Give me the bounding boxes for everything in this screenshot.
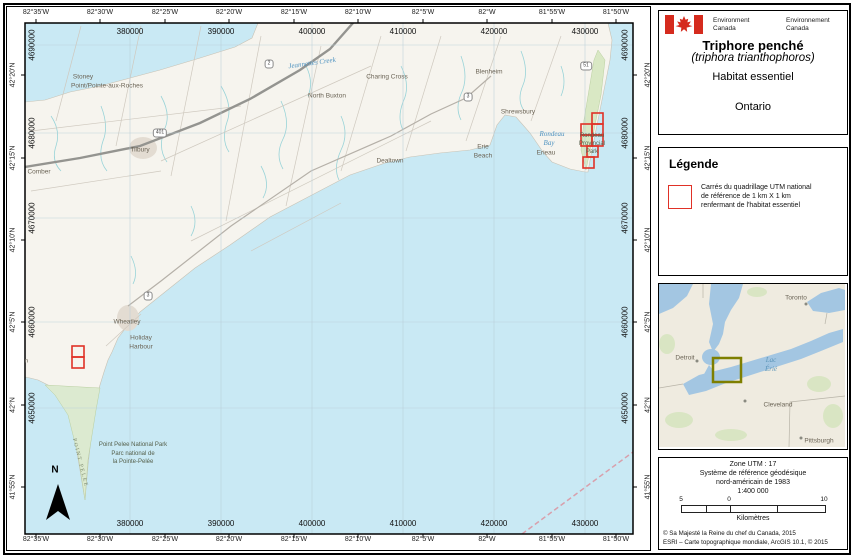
northing-label-left: 4670000 (28, 202, 37, 233)
place-label-north-buxton: North Buxton (308, 93, 346, 100)
lat-label-right: 42°15'N (645, 146, 652, 171)
place-label-erie-beach: Beach (474, 153, 492, 160)
lon-label-bottom: 81°50'W (603, 536, 629, 543)
rondeau-park-label: Provincial (579, 141, 605, 147)
place-label-blenheim: Blenheim (475, 69, 502, 76)
place-label-holiday-harbour: Holiday (130, 335, 152, 342)
easting-label-top: 420000 (481, 27, 508, 36)
place-label-stoney-point: Point/Pointe-aux-Roches (71, 83, 143, 90)
easting-label-top: 430000 (572, 27, 599, 36)
map-subtitle: Habitat essentiel (712, 71, 793, 83)
place-label-leamington: Leamington (25, 358, 28, 365)
scale-bar (681, 505, 826, 513)
northing-label-left: 4660000 (28, 306, 37, 337)
highway-shield-3: 3 (144, 292, 153, 301)
highway-shield-2: 2 (265, 60, 274, 69)
canada-flag-icon (665, 15, 703, 34)
info-panel: Zone UTM : 17 Système de référence géodé… (658, 457, 848, 550)
species-name: (triphora trianthophoros) (691, 52, 814, 64)
inset-city-pittsburgh: Pittsburgh (804, 438, 833, 445)
place-label-wheatley: Wheatley (113, 319, 140, 326)
scalebar-number: 0 (727, 496, 731, 503)
northing-label-right: 4670000 (621, 202, 630, 233)
lon-label-bottom: 82°30'W (87, 536, 113, 543)
easting-label-bottom: 420000 (481, 519, 508, 528)
easting-label-top: 380000 (117, 27, 144, 36)
map-interior: 380000 390000 400000 410000 420000 43000… (25, 23, 633, 534)
northing-label-right: 4650000 (621, 392, 630, 423)
lon-label-top: 82°25'W (152, 9, 178, 16)
lat-label-right: 41°55'N (645, 475, 652, 500)
inset-map-panel: Toronto Detroit Cleveland Pittsburgh Lac… (658, 283, 848, 450)
lat-label-left: 42°N (10, 397, 17, 413)
easting-label-bottom: 380000 (117, 519, 144, 528)
place-label-erie-beach: Erie (477, 144, 489, 151)
easting-label-top: 400000 (299, 27, 326, 36)
northing-label-left: 4690000 (28, 29, 37, 60)
easting-label-bottom: 400000 (299, 519, 326, 528)
title-panel: EnvironmentCanada EnvironnementCanada Tr… (658, 10, 848, 135)
datum-label: Système de référence géodésique (700, 470, 807, 477)
lon-label-top: 82°30'W (87, 9, 113, 16)
easting-label-bottom: 430000 (572, 519, 599, 528)
environnement-canada-fr: EnvironnementCanada (786, 17, 830, 32)
lon-label-top: 82°20'W (216, 9, 242, 16)
easting-label-bottom: 390000 (208, 519, 235, 528)
lon-label-bottom: 81°55'W (539, 536, 565, 543)
point-pelee-label: POINT PELEE (71, 438, 89, 488)
northing-label-left: 4650000 (28, 392, 37, 423)
place-label-erieau: Erieau (537, 150, 556, 157)
lon-label-top: 82°5'W (412, 9, 434, 16)
lat-label-left: 42°20'N (10, 63, 17, 88)
lon-label-top: 81°55'W (539, 9, 565, 16)
inset-lake-erie-label: Lac (766, 356, 777, 364)
region-label: Ontario (735, 101, 771, 113)
lon-label-top: 82°35'W (23, 9, 49, 16)
lat-label-right: 42°20'N (645, 63, 652, 88)
lon-label-bottom: 82°15'W (281, 536, 307, 543)
pelee-park-label: Parc national de (111, 451, 154, 457)
rondeau-park-label: Park (586, 149, 598, 155)
lon-label-bottom: 82°35'W (23, 536, 49, 543)
highway-shield-51: 51 (580, 62, 592, 71)
place-label-comber: Comber (27, 169, 50, 176)
lon-label-top: 82°W (478, 9, 495, 16)
lon-label-bottom: 82°25'W (152, 536, 178, 543)
easting-label-bottom: 410000 (390, 519, 417, 528)
scale-ratio-label: 1:400 000 (737, 488, 768, 495)
pelee-park-label: Point Pelee National Park (99, 442, 167, 448)
lon-label-bottom: 82°W (478, 536, 495, 543)
map-title: Triphore penché (702, 38, 803, 53)
environment-canada-en: EnvironmentCanada (713, 17, 750, 32)
lat-label-right: 42°10'N (645, 228, 652, 253)
lon-label-bottom: 82°5'W (412, 536, 434, 543)
rondeau-bay-label: Bay (544, 139, 555, 147)
legend-item-text: Carrés du quadrillage UTM national de ré… (701, 183, 812, 210)
creek-label: Jeannettes Creek (288, 56, 336, 71)
north-arrow-label: N (51, 465, 58, 476)
map-document: { "title_panel": { "env_en_1": "Environm… (0, 0, 854, 558)
inset-city-cleveland: Cleveland (764, 402, 793, 409)
place-label-shrewsbury: Shrewsbury (501, 109, 535, 116)
inset-city-toronto: Toronto (785, 295, 807, 302)
scalebar-number: 10 (820, 496, 827, 503)
lat-label-left: 42°5'N (10, 312, 17, 333)
scalebar-unit-label: Kilomètres (736, 515, 769, 522)
habitat-square-symbol (668, 185, 692, 209)
legend-panel: Légende Carrés du quadrillage UTM nation… (658, 147, 848, 276)
lat-label-right: 42°N (645, 397, 652, 413)
place-label-dealtown: Dealtown (376, 158, 403, 165)
place-label-holiday-harbour: Harbour (129, 344, 152, 351)
datum-label: nord-américain de 1983 (716, 479, 790, 486)
lat-label-left: 42°10'N (10, 228, 17, 253)
lon-label-bottom: 82°20'W (216, 536, 242, 543)
easting-label-top: 390000 (208, 27, 235, 36)
inset-map-canvas (659, 284, 845, 447)
pelee-park-label: la Pointe-Pelée (113, 459, 154, 465)
legend-heading: Légende (669, 157, 718, 171)
inset-lake-erie-label: Érié (765, 365, 777, 373)
scalebar-number: 5 (679, 496, 683, 503)
rondeau-park-label: Rondeau (580, 133, 604, 139)
place-label-charing-cross: Charing Cross (366, 74, 408, 81)
highway-shield-3: 3 (464, 93, 473, 102)
highway-shield-401: 401 (153, 129, 167, 138)
lon-label-top: 82°10'W (345, 9, 371, 16)
lon-label-top: 82°15'W (281, 9, 307, 16)
northing-label-right: 4690000 (621, 29, 630, 60)
easting-label-top: 410000 (390, 27, 417, 36)
northing-label-right: 4660000 (621, 306, 630, 337)
place-label-stoney-point: Stoney (73, 74, 93, 81)
inset-city-detroit: Detroit (675, 355, 694, 362)
place-label-tilbury: Tilbury (130, 147, 149, 154)
lon-label-bottom: 82°10'W (345, 536, 371, 543)
lat-label-left: 42°15'N (10, 146, 17, 171)
copyright-esri: ESRI – Carte topographique mondiale, Arc… (663, 539, 828, 546)
rondeau-bay-label: Rondeau (540, 130, 565, 138)
copyright-crown: © Sa Majesté la Reine du chef du Canada,… (663, 530, 796, 537)
lat-label-left: 41°55'N (10, 475, 17, 500)
northing-label-left: 4680000 (28, 117, 37, 148)
lon-label-top: 81°50'W (603, 9, 629, 16)
utm-zone-label: Zone UTM : 17 (730, 461, 777, 468)
northing-label-right: 4680000 (621, 117, 630, 148)
lat-label-right: 42°5'N (645, 312, 652, 333)
